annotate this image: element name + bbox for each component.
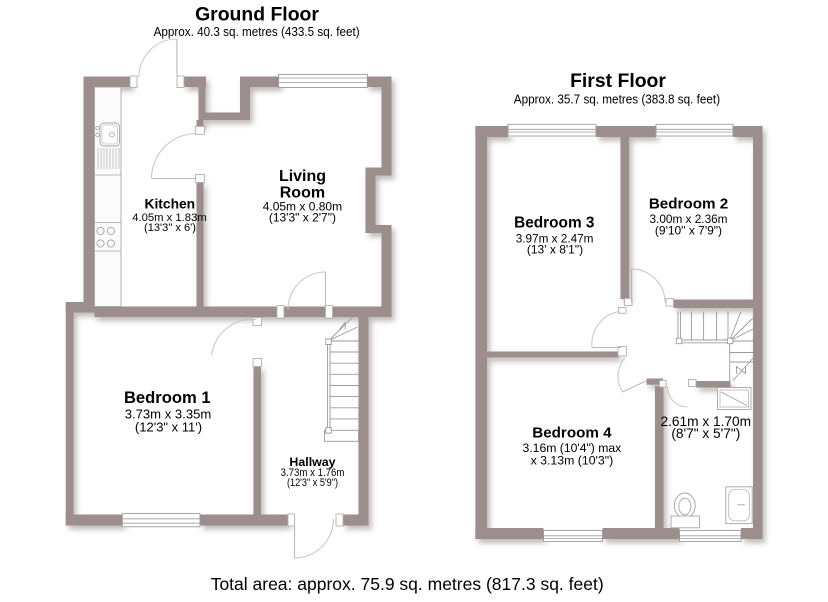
svg-text:Approx. 40.3 sq. metres (433.5: Approx. 40.3 sq. metres (433.5 sq. feet): [154, 24, 360, 39]
svg-text:Bedroom 3: Bedroom 3: [514, 214, 594, 231]
svg-text:Living: Living: [279, 168, 326, 185]
svg-text:(13' x 8'1"): (13' x 8'1"): [527, 243, 583, 257]
svg-text:First Floor: First Floor: [570, 70, 666, 92]
svg-text:Bedroom 2: Bedroom 2: [649, 196, 728, 213]
svg-text:(13'3" x 6'): (13'3" x 6'): [144, 222, 196, 234]
svg-text:Bedroom 4: Bedroom 4: [532, 425, 612, 442]
svg-text:(12'3" x 11'): (12'3" x 11'): [135, 420, 202, 435]
svg-text:Total area: approx. 75.9 sq. m: Total area: approx. 75.9 sq. metres (817…: [211, 574, 604, 594]
svg-text:Bedroom 1: Bedroom 1: [124, 388, 211, 407]
svg-text:(8'7" x 5'7"): (8'7" x 5'7"): [671, 426, 740, 441]
svg-text:(13'3" x 2'7"): (13'3" x 2'7"): [269, 211, 336, 225]
svg-text:Kitchen: Kitchen: [145, 197, 196, 212]
svg-text:x 3.13m (10'3"): x 3.13m (10'3"): [531, 453, 614, 467]
svg-text:Ground Floor: Ground Floor: [195, 4, 319, 26]
svg-text:(12'3" x 5'9"): (12'3" x 5'9"): [287, 477, 338, 489]
svg-text:Approx. 35.7 sq. metres (383.8: Approx. 35.7 sq. metres (383.8 sq. feet): [514, 91, 720, 106]
svg-text:(9'10" x 7'9"): (9'10" x 7'9"): [655, 224, 722, 238]
